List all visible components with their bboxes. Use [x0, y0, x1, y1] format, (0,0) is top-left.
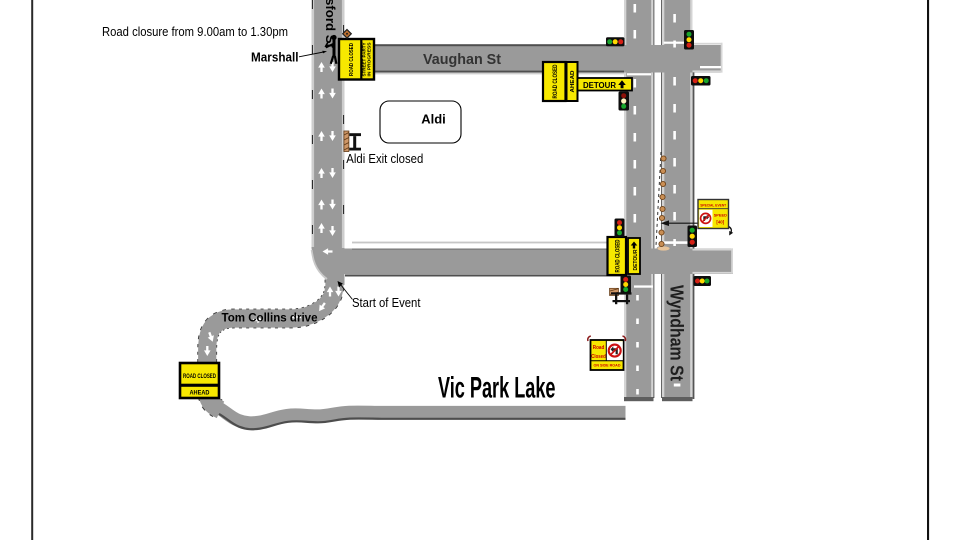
- svg-text:DETOUR: DETOUR: [583, 80, 617, 90]
- svg-text:AHEAD: AHEAD: [190, 391, 211, 397]
- svg-text:ROAD CLOSED: ROAD CLOSED: [616, 239, 622, 272]
- svg-text:Start of Event: Start of Event: [352, 296, 421, 310]
- svg-text:Closed: Closed: [591, 354, 606, 360]
- svg-text:ON SIDE ROAD: ON SIDE ROAD: [594, 363, 621, 368]
- svg-text:Road: Road: [593, 345, 605, 351]
- svg-text:Wyndham St: Wyndham St: [666, 285, 686, 381]
- svg-text:Aldi Exit closed: Aldi Exit closed: [346, 152, 423, 166]
- svg-text:[40]: [40]: [716, 220, 724, 225]
- svg-text:ROAD CLOSED: ROAD CLOSED: [349, 43, 355, 76]
- svg-text:IN PROGRESS: IN PROGRESS: [367, 42, 372, 76]
- svg-text:DETOUR: DETOUR: [633, 249, 639, 270]
- svg-text:AHEAD: AHEAD: [570, 71, 576, 93]
- svg-text:elsford St: elsford St: [323, 0, 337, 49]
- svg-text:SPECIAL EVENT: SPECIAL EVENT: [700, 202, 726, 207]
- svg-text:ROAD CLOSED: ROAD CLOSED: [183, 374, 216, 380]
- svg-text:Tom Collins drive: Tom Collins drive: [222, 311, 318, 325]
- svg-text:ROAD CLOSED: ROAD CLOSED: [552, 64, 559, 98]
- svg-text:SPEED: SPEED: [714, 213, 727, 218]
- svg-text:Vaughan St: Vaughan St: [423, 51, 501, 68]
- svg-text:Aldi: Aldi: [421, 112, 446, 127]
- svg-text:Marshall: Marshall: [251, 51, 299, 65]
- svg-text:Vic Park Lake: Vic Park Lake: [438, 372, 556, 405]
- svg-text:Road closure from 9.00am to 1.: Road closure from 9.00am to 1.30pm: [102, 24, 288, 39]
